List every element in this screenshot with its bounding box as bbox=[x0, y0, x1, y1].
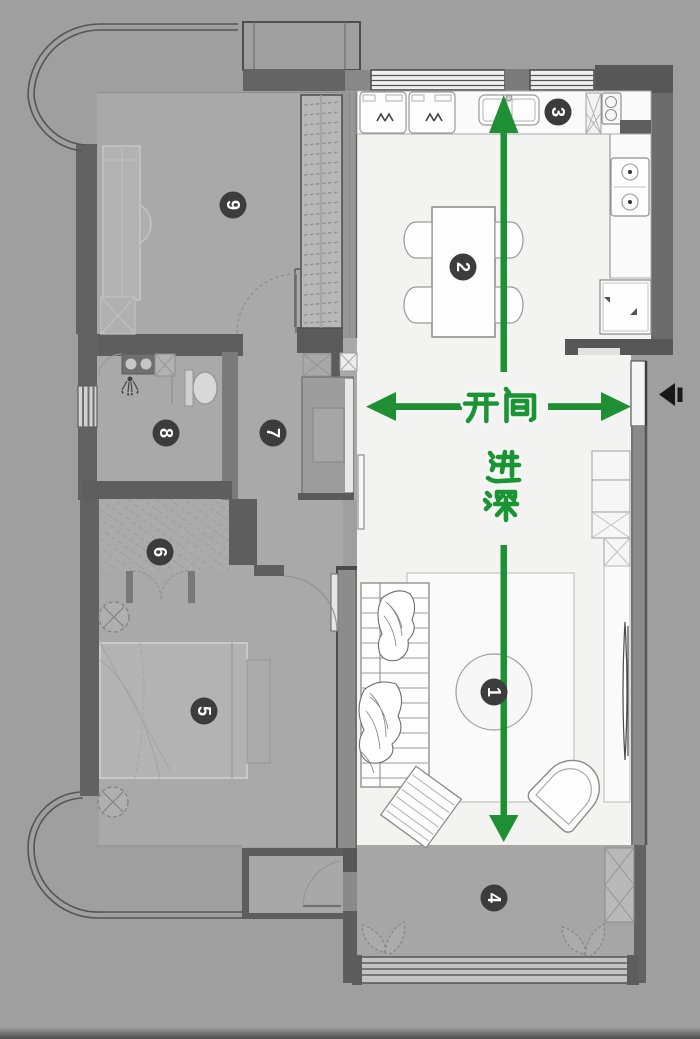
svg-text:8: 8 bbox=[156, 428, 176, 438]
svg-text:6: 6 bbox=[150, 547, 170, 557]
svg-text:7: 7 bbox=[263, 428, 283, 438]
svg-text:3: 3 bbox=[548, 107, 568, 117]
svg-text:9: 9 bbox=[223, 200, 243, 210]
svg-text:5: 5 bbox=[194, 706, 214, 716]
svg-text:1: 1 bbox=[484, 687, 504, 697]
svg-text:4: 4 bbox=[484, 893, 504, 903]
svg-text:2: 2 bbox=[453, 262, 473, 272]
